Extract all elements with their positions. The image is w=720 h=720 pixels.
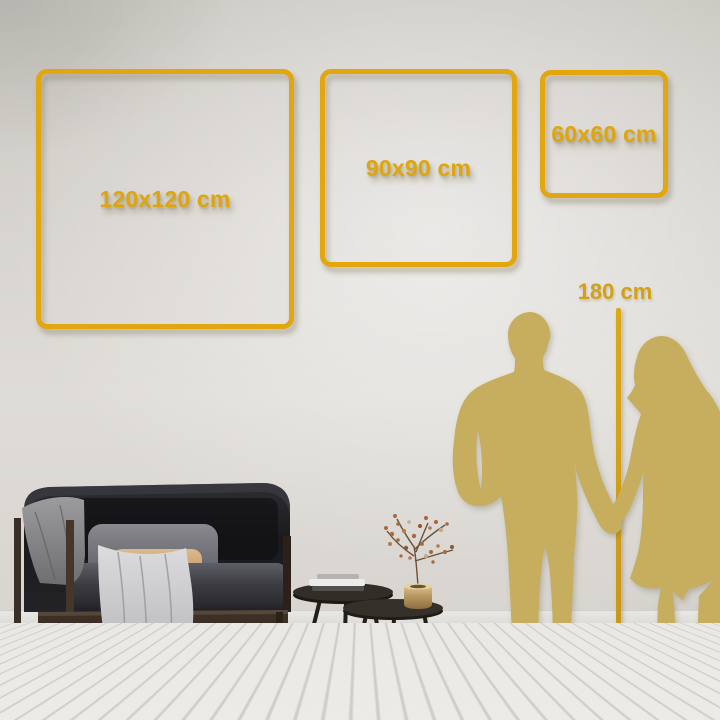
size-frame-60x60: 60x60 cm [540, 70, 668, 198]
height-ruler-line [616, 308, 621, 690]
size-frame-90x90: 90x90 cm [320, 69, 517, 267]
floor [0, 623, 720, 720]
size-guide-scene: 120x120 cm 90x90 cm 60x60 cm 180 cm [0, 0, 720, 720]
size-frame-120x120: 120x120 cm [36, 69, 294, 329]
height-ruler-label: 180 cm [559, 279, 671, 305]
floor-wall-shadow [0, 623, 720, 720]
size-label-60x60: 60x60 cm [551, 121, 656, 148]
size-label-120x120: 120x120 cm [99, 186, 230, 213]
size-label-90x90: 90x90 cm [366, 155, 471, 182]
